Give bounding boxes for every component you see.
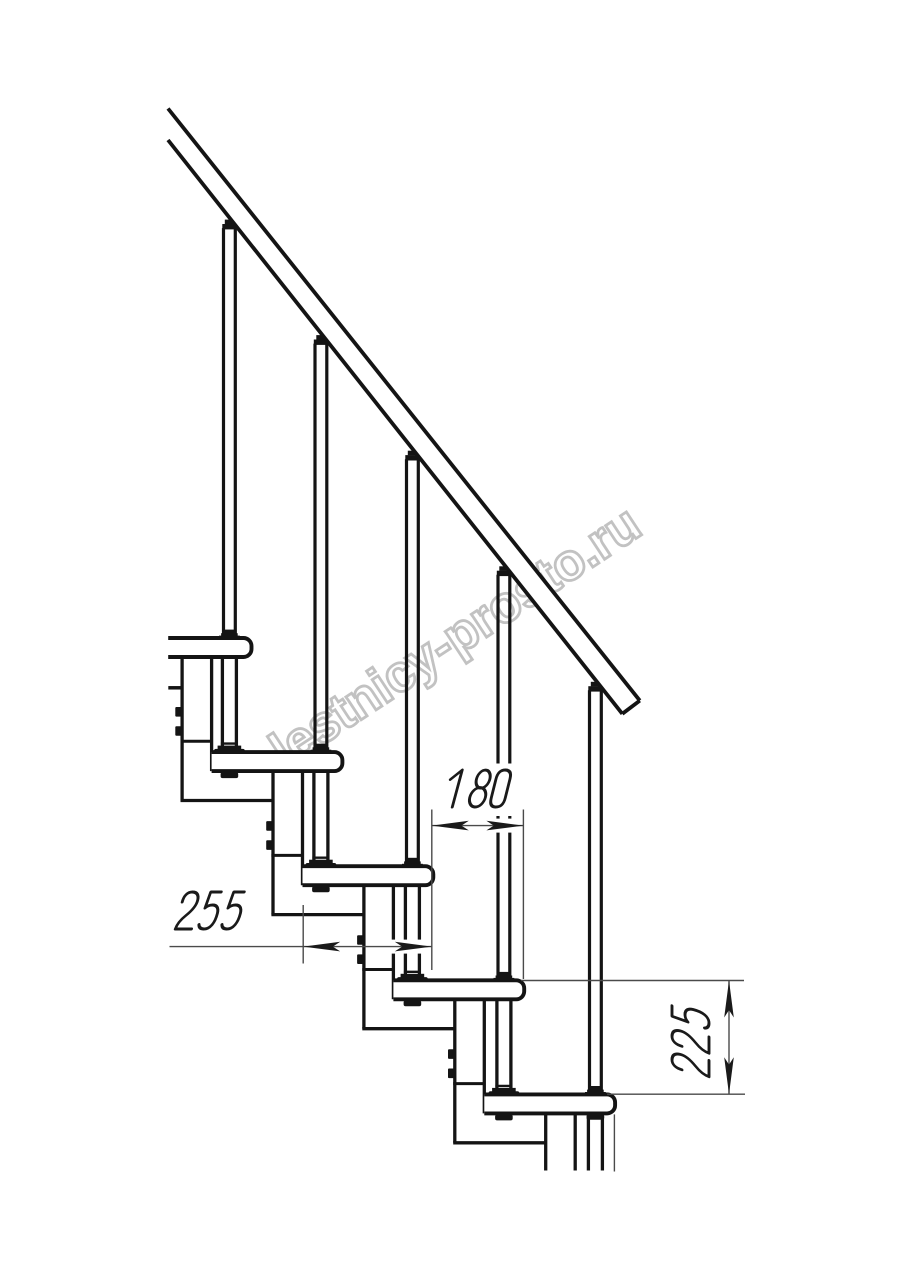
svg-text:lestnicy-prosto.ru: lestnicy-prosto.ru xyxy=(260,495,651,780)
